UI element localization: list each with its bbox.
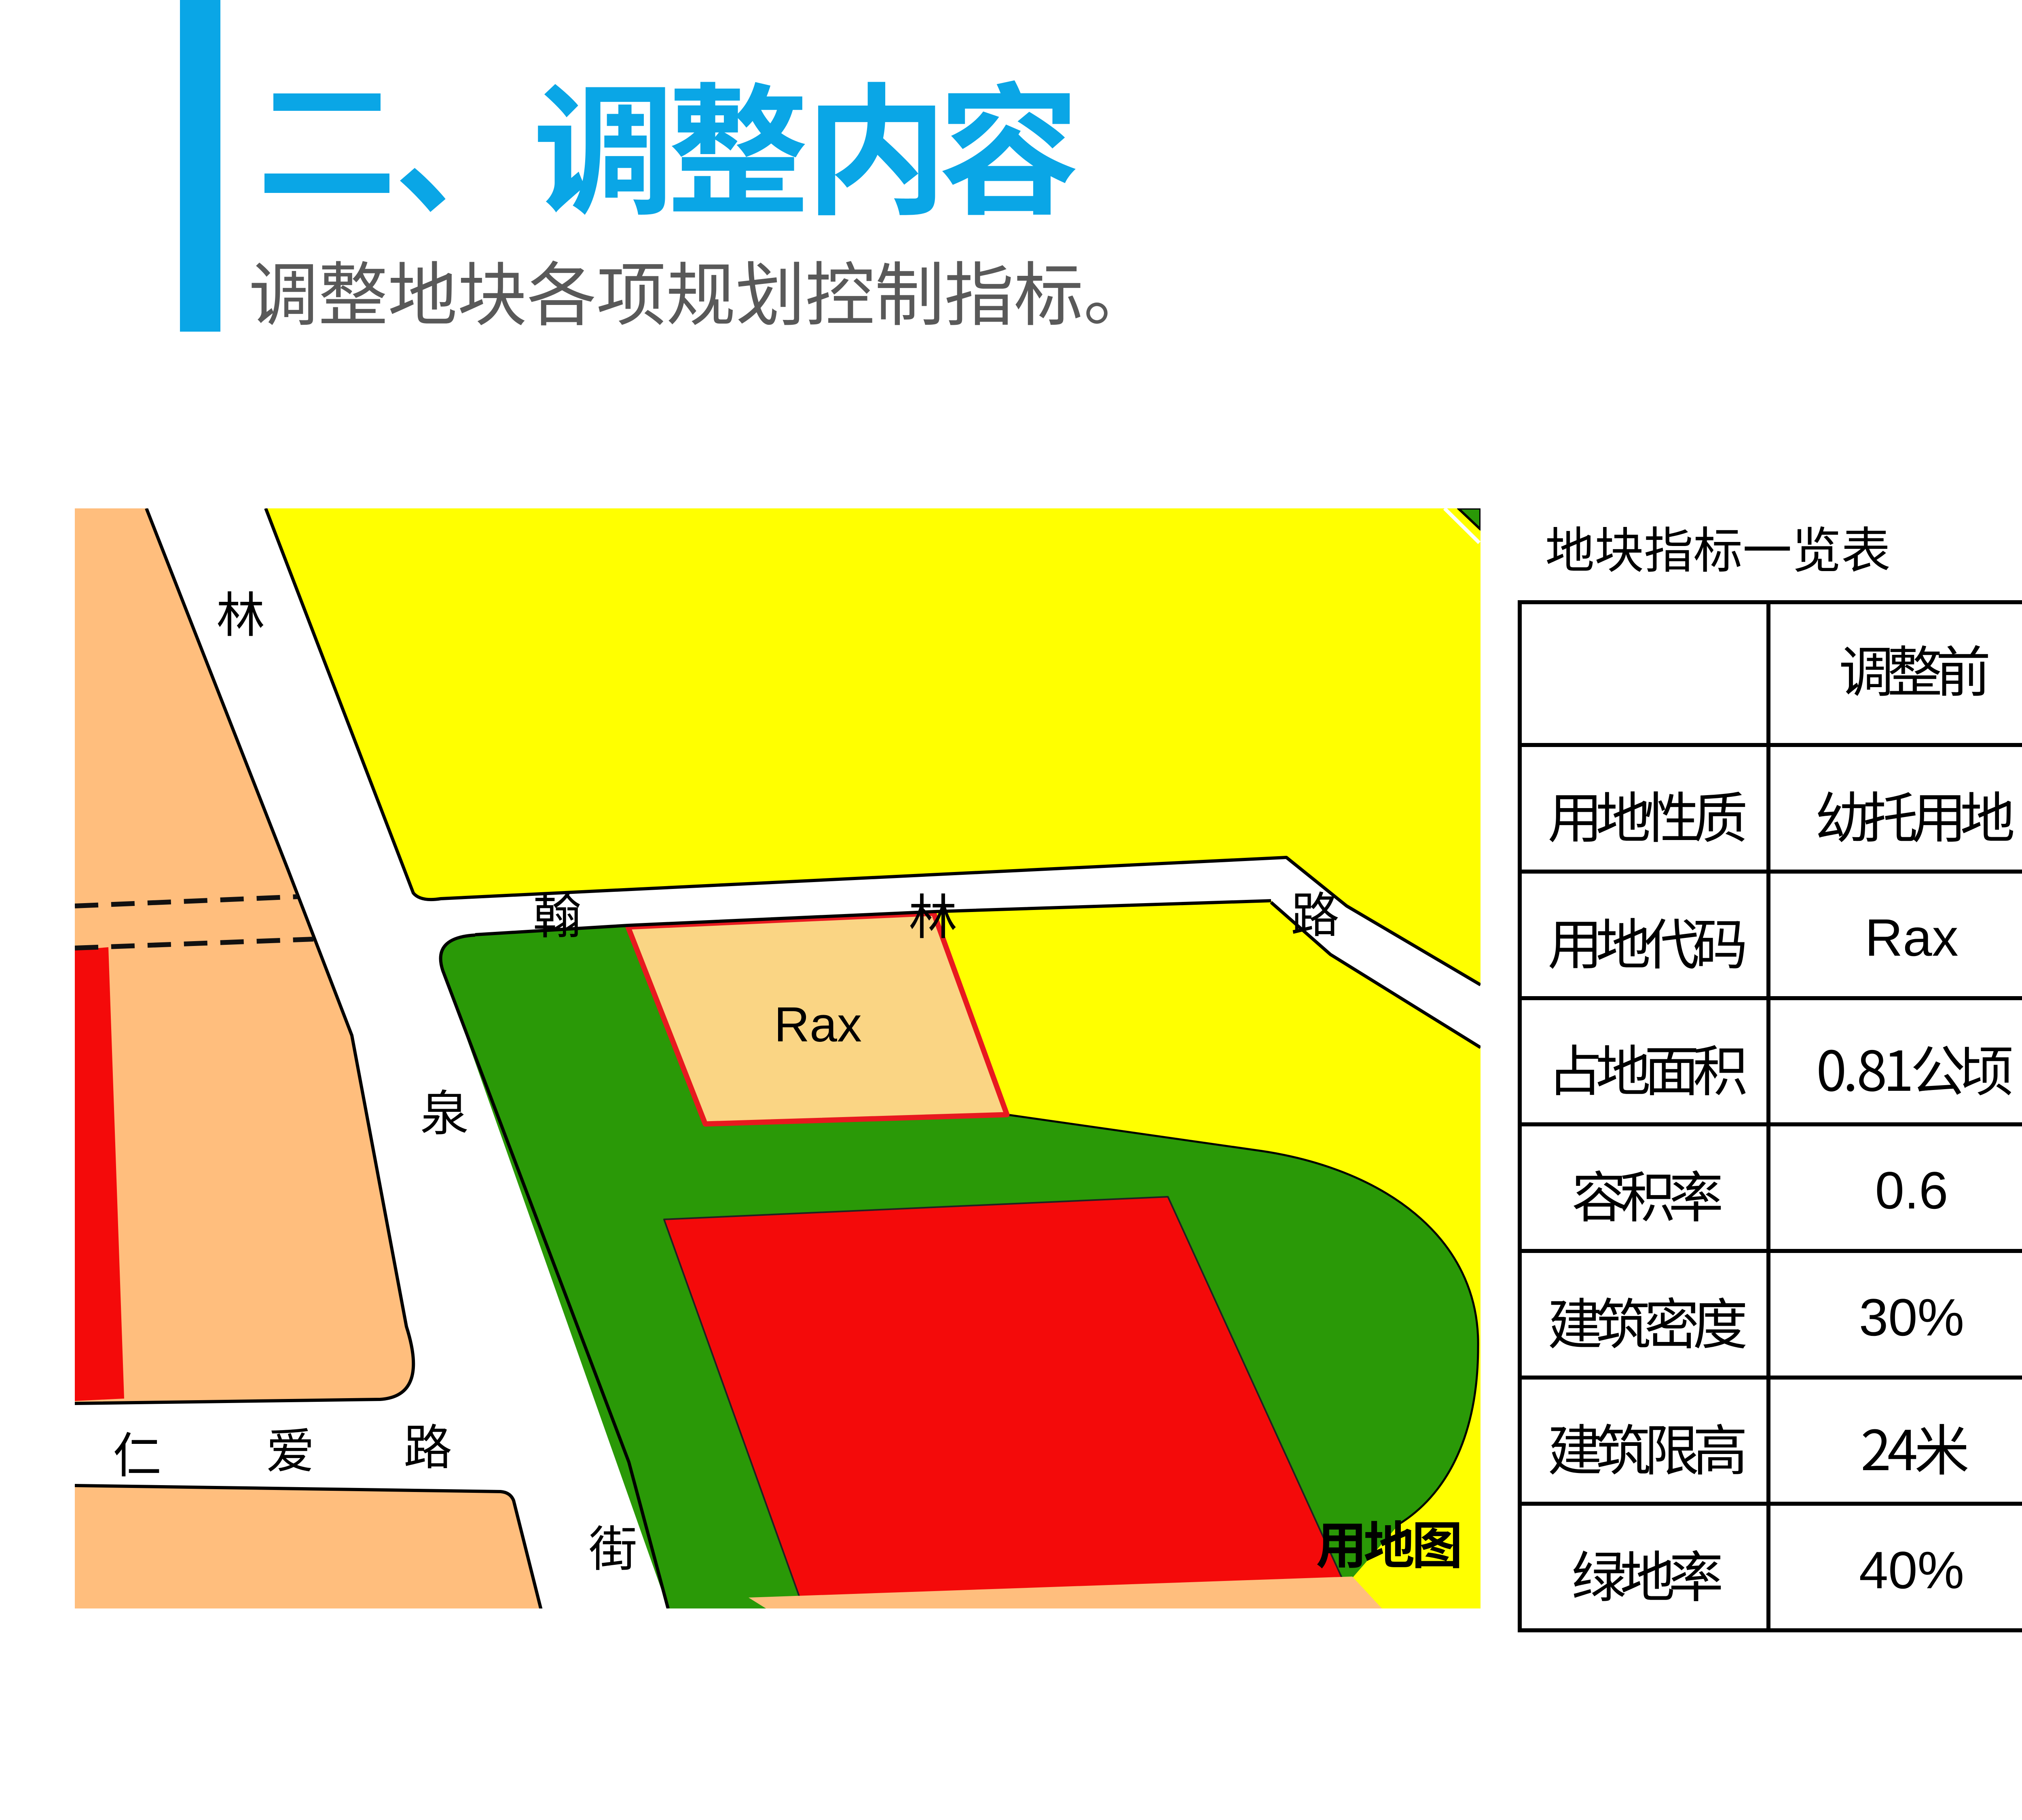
svg-text:40%: 40% [1859,1541,1964,1600]
svg-text:Rax: Rax [774,997,862,1052]
svg-text:Rax: Rax [1865,908,1958,967]
svg-text:30%: 30% [1859,1288,1964,1347]
svg-text:0.6: 0.6 [1875,1161,1948,1220]
